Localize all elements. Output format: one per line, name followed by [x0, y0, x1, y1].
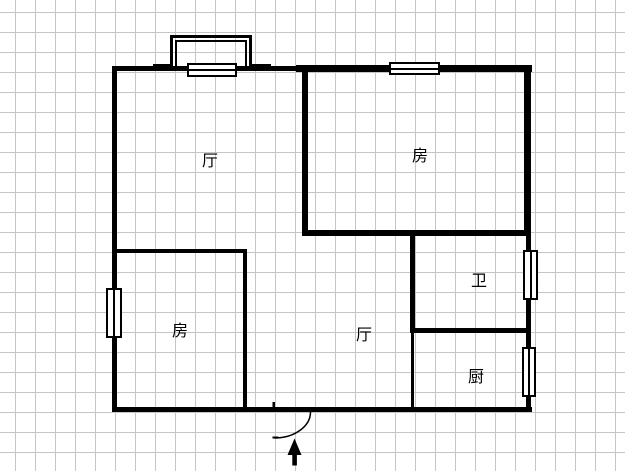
room-label-hall-lower: 厅	[356, 327, 372, 343]
door-arc-end-tick	[273, 437, 279, 439]
room-label-kitchen: 厨	[468, 369, 484, 385]
room-label-bathroom: 卫	[471, 273, 487, 289]
entrance-arrow-icon	[288, 439, 302, 466]
entrance-overlay	[0, 0, 625, 471]
door-swing-arc	[275, 412, 311, 438]
door-hinge-tick	[273, 402, 276, 408]
room-label-bedroom-top-right: 房	[412, 148, 428, 164]
room-label-hall-upper: 厅	[202, 153, 218, 169]
room-label-bedroom-bottom-left: 房	[172, 323, 188, 339]
floor-plan-canvas: 厅 房 卫 房 厅 厨	[0, 0, 625, 471]
